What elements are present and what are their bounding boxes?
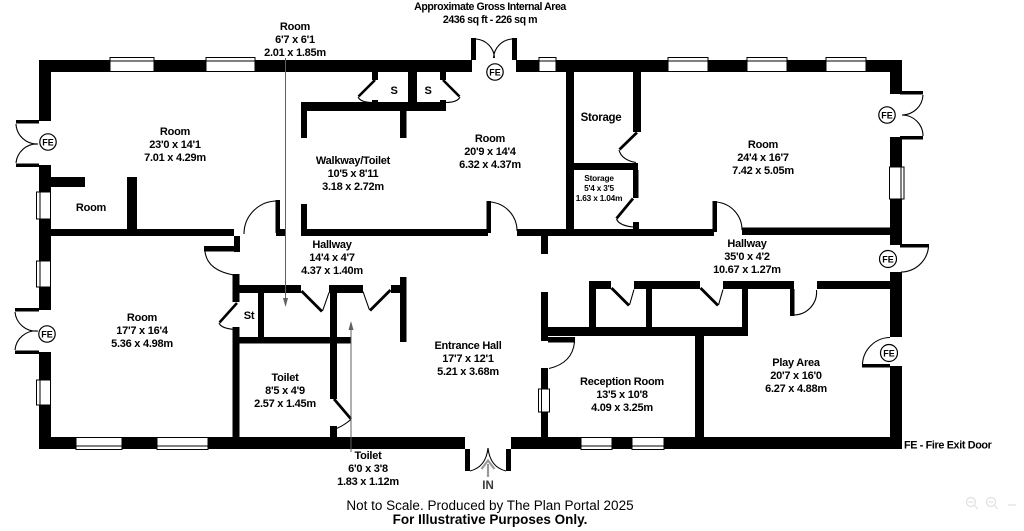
svg-text:6'7 x 6'1: 6'7 x 6'1 xyxy=(275,34,315,46)
svg-text:7.01 x 4.29m: 7.01 x 4.29m xyxy=(144,152,206,164)
svg-text:Room: Room xyxy=(748,139,779,151)
svg-text:Play Area: Play Area xyxy=(772,357,821,369)
svg-text:35'0 x 4'2: 35'0 x 4'2 xyxy=(724,251,770,263)
svg-text:1.83 x 1.12m: 1.83 x 1.12m xyxy=(337,476,399,488)
svg-text:5'4 x 3'5: 5'4 x 3'5 xyxy=(584,183,614,193)
svg-text:17'7 x 16'4: 17'7 x 16'4 xyxy=(116,325,169,337)
svg-text:2.57 x 1.45m: 2.57 x 1.45m xyxy=(254,398,316,410)
svg-text:5.21 x 3.68m: 5.21 x 3.68m xyxy=(437,366,499,378)
svg-text:10.67 x 1.27m: 10.67 x 1.27m xyxy=(713,264,781,276)
svg-text:20'7 x 16'0: 20'7 x 16'0 xyxy=(770,370,822,382)
svg-text:20'9 x 14'4: 20'9 x 14'4 xyxy=(464,146,517,158)
svg-text:FE: FE xyxy=(882,255,894,265)
svg-text:Room: Room xyxy=(76,202,107,214)
svg-text:5.36 x 4.98m: 5.36 x 4.98m xyxy=(111,338,173,350)
svg-text:Toilet: Toilet xyxy=(354,450,382,462)
svg-text:13'5 x 10'8: 13'5 x 10'8 xyxy=(596,389,648,401)
svg-text:FE: FE xyxy=(883,349,895,359)
svg-text:Room: Room xyxy=(280,21,311,33)
svg-text:FE - Fire Exit Door: FE - Fire Exit Door xyxy=(904,440,993,452)
svg-text:4.09 x 3.25m: 4.09 x 3.25m xyxy=(591,402,653,414)
svg-text:Approximate Gross Internal Are: Approximate Gross Internal Area xyxy=(414,1,566,13)
svg-text:Storage: Storage xyxy=(584,173,614,183)
svg-text:6'0 x 3'8: 6'0 x 3'8 xyxy=(348,463,388,475)
svg-text:Entrance Hall: Entrance Hall xyxy=(434,340,501,352)
svg-text:Room: Room xyxy=(160,126,191,138)
svg-text:8'5 x 4'9: 8'5 x 4'9 xyxy=(265,385,305,397)
svg-text:IN: IN xyxy=(482,480,494,492)
svg-text:6.27 x 4.88m: 6.27 x 4.88m xyxy=(765,383,827,395)
svg-text:Room: Room xyxy=(127,312,158,324)
svg-text:Hallway: Hallway xyxy=(312,239,352,251)
svg-text:Room: Room xyxy=(475,133,506,145)
svg-text:For Illustrative Purposes Only: For Illustrative Purposes Only. xyxy=(393,512,588,527)
svg-text:Walkway/Toilet: Walkway/Toilet xyxy=(316,155,391,167)
svg-text:Toilet: Toilet xyxy=(271,372,299,384)
svg-text:7.42 x 5.05m: 7.42 x 5.05m xyxy=(732,165,794,177)
svg-text:4.37 x 1.40m: 4.37 x 1.40m xyxy=(301,265,363,277)
svg-text:S: S xyxy=(424,85,431,97)
svg-text:FE: FE xyxy=(881,111,893,121)
svg-text:17'7 x 12'1: 17'7 x 12'1 xyxy=(442,353,494,365)
svg-text:24'4 x 16'7: 24'4 x 16'7 xyxy=(737,152,789,164)
svg-text:FE: FE xyxy=(41,330,53,340)
svg-text:S: S xyxy=(390,85,397,97)
svg-text:2.01 x 1.85m: 2.01 x 1.85m xyxy=(264,47,326,59)
svg-text:FE: FE xyxy=(42,138,54,148)
svg-text:Storage: Storage xyxy=(581,112,622,124)
svg-text:3.18 x 2.72m: 3.18 x 2.72m xyxy=(322,181,384,193)
svg-text:2436 sq ft - 226 sq m: 2436 sq ft - 226 sq m xyxy=(443,14,537,26)
svg-text:10'5 x 8'11: 10'5 x 8'11 xyxy=(328,168,379,180)
svg-text:Reception Room: Reception Room xyxy=(580,376,664,388)
svg-text:Hallway: Hallway xyxy=(727,238,767,250)
svg-text:St: St xyxy=(244,310,255,322)
svg-text:Not to Scale. Produced by The: Not to Scale. Produced by The Plan Porta… xyxy=(346,498,633,513)
svg-text:23'0 x 14'1: 23'0 x 14'1 xyxy=(149,139,201,151)
svg-text:14'4 x 4'7: 14'4 x 4'7 xyxy=(309,252,355,264)
svg-text:6.32 x 4.37m: 6.32 x 4.37m xyxy=(459,159,521,171)
svg-text:FE: FE xyxy=(489,68,501,78)
svg-text:1.63 x 1.04m: 1.63 x 1.04m xyxy=(576,193,623,203)
